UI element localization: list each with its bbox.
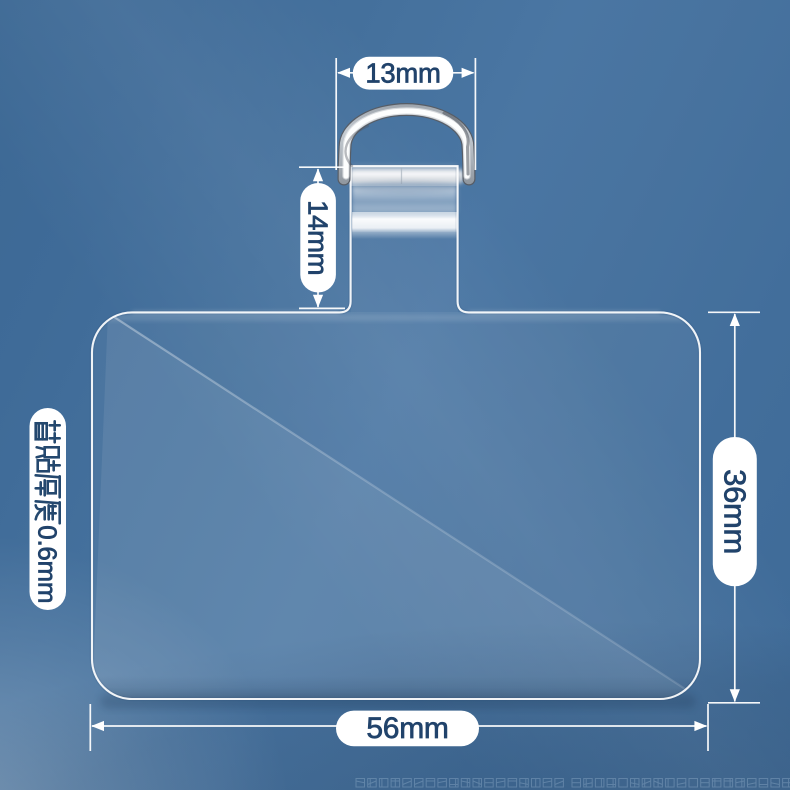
svg-text:14mm: 14mm [303,200,334,275]
svg-text:13mm: 13mm [365,58,440,89]
svg-text:36mm: 36mm [717,469,752,554]
svg-text:0.6mm: 0.6mm [33,525,63,603]
svg-text:56mm: 56mm [366,712,448,745]
